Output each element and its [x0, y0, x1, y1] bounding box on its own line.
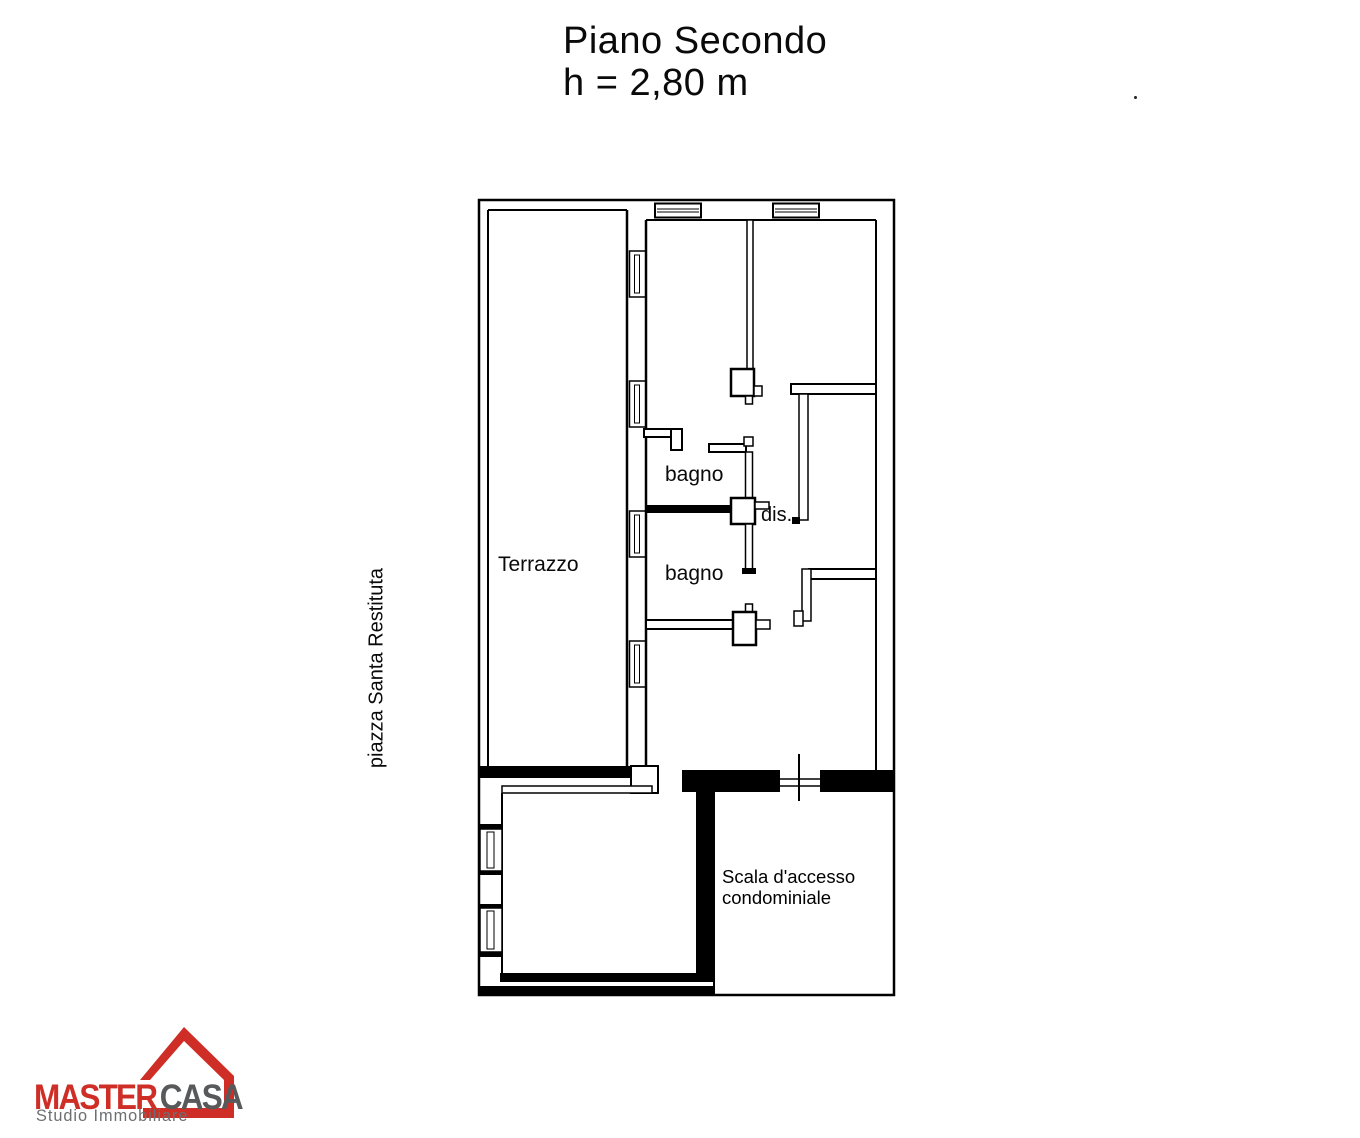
- pillar: [733, 612, 756, 645]
- bagno2-walls: [646, 604, 770, 645]
- brand-logo: MASTER CASA Studio Immobiliare: [10, 1020, 270, 1132]
- bedroom-divider-wall: [747, 220, 753, 369]
- room-label-terrazzo: Terrazzo: [498, 553, 579, 577]
- terrazzo-windows: [630, 251, 646, 687]
- pillar: [731, 498, 755, 524]
- room-label-dis: dis.: [761, 504, 792, 527]
- logo-tagline: Studio Immobiliare: [36, 1106, 188, 1126]
- scanned-floorplan-page: { "title": { "line1": "Piano Secondo", "…: [0, 0, 1360, 1138]
- window: [773, 204, 819, 218]
- bagni-divider-wall: [646, 505, 731, 513]
- room-label-bagno-1: bagno: [665, 463, 723, 487]
- room-label-bagno-2: bagno: [665, 562, 723, 586]
- room-label-scala: Scala d'accesso condominiale: [722, 866, 855, 908]
- pillar: [731, 369, 754, 396]
- scala-label-line1: Scala d'accesso: [722, 866, 855, 887]
- right-room-walls: [794, 569, 876, 626]
- street-label: piazza Santa Restituta: [366, 568, 389, 768]
- bottom-room-walls: [480, 786, 652, 973]
- scala-label-line2: condominiale: [722, 887, 855, 908]
- terrazzo-bottom-wall: [479, 766, 632, 778]
- entrance-door: [780, 754, 820, 801]
- window: [655, 204, 701, 218]
